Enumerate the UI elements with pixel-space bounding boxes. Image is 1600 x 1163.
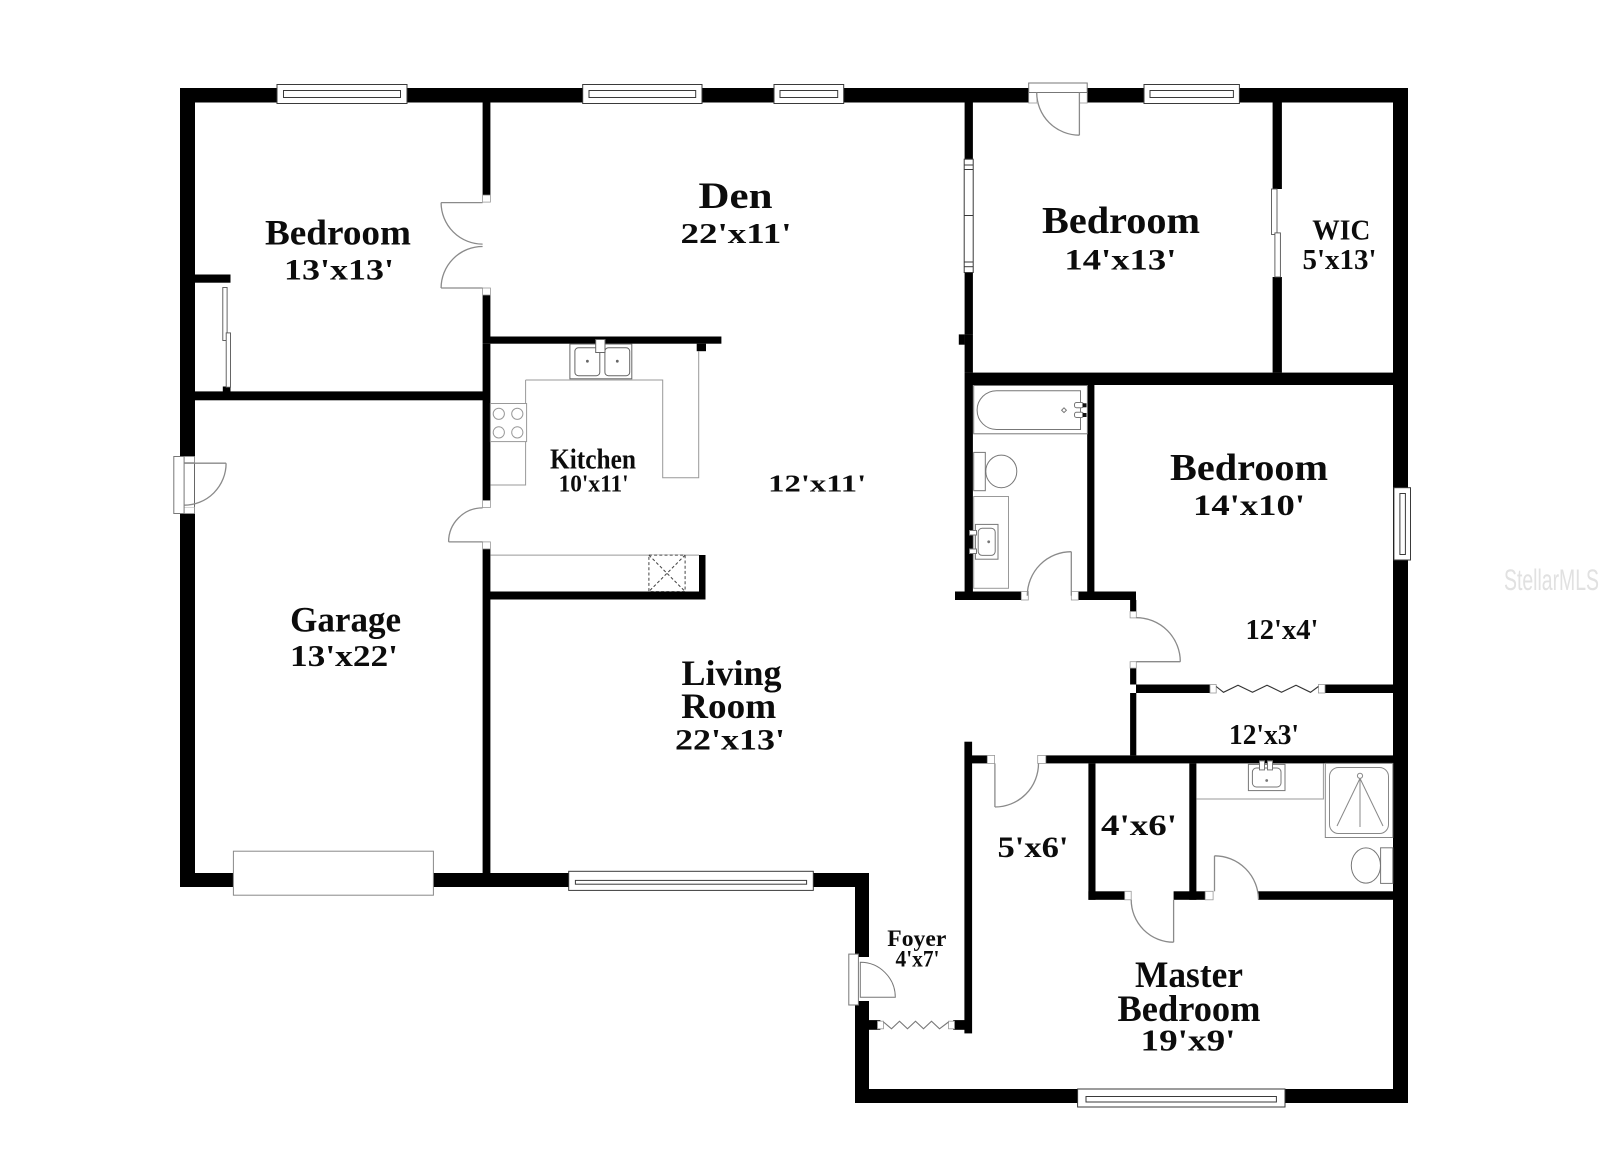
svg-text:Garage: Garage: [290, 600, 401, 640]
svg-text:4'x6': 4'x6': [1101, 809, 1177, 842]
svg-text:4'x7': 4'x7': [896, 946, 940, 971]
svg-text:Den: Den: [699, 176, 773, 217]
svg-text:10'x11': 10'x11': [559, 472, 629, 498]
svg-text:5'x13': 5'x13': [1303, 244, 1377, 276]
svg-text:Bedroom: Bedroom: [265, 213, 411, 253]
svg-text:13'x22': 13'x22': [290, 638, 398, 673]
svg-text:22'x13': 22'x13': [675, 724, 785, 757]
svg-text:14'x13': 14'x13': [1064, 243, 1176, 276]
svg-text:5'x6': 5'x6': [998, 831, 1069, 864]
svg-text:12'x11': 12'x11': [768, 471, 866, 497]
svg-text:Bedroom: Bedroom: [1042, 200, 1200, 242]
svg-text:WIC: WIC: [1312, 214, 1370, 246]
svg-text:22'x11': 22'x11': [681, 218, 792, 250]
svg-text:Bedroom: Bedroom: [1170, 447, 1328, 489]
svg-text:12'x3': 12'x3': [1229, 719, 1299, 751]
svg-text:19'x9': 19'x9': [1141, 1022, 1236, 1057]
svg-text:Room: Room: [681, 686, 776, 726]
svg-text:13'x13': 13'x13': [284, 254, 394, 287]
svg-text:14'x10': 14'x10': [1193, 489, 1305, 522]
svg-text:StellarMLS: StellarMLS: [1504, 564, 1599, 597]
svg-text:12'x4': 12'x4': [1246, 614, 1319, 646]
